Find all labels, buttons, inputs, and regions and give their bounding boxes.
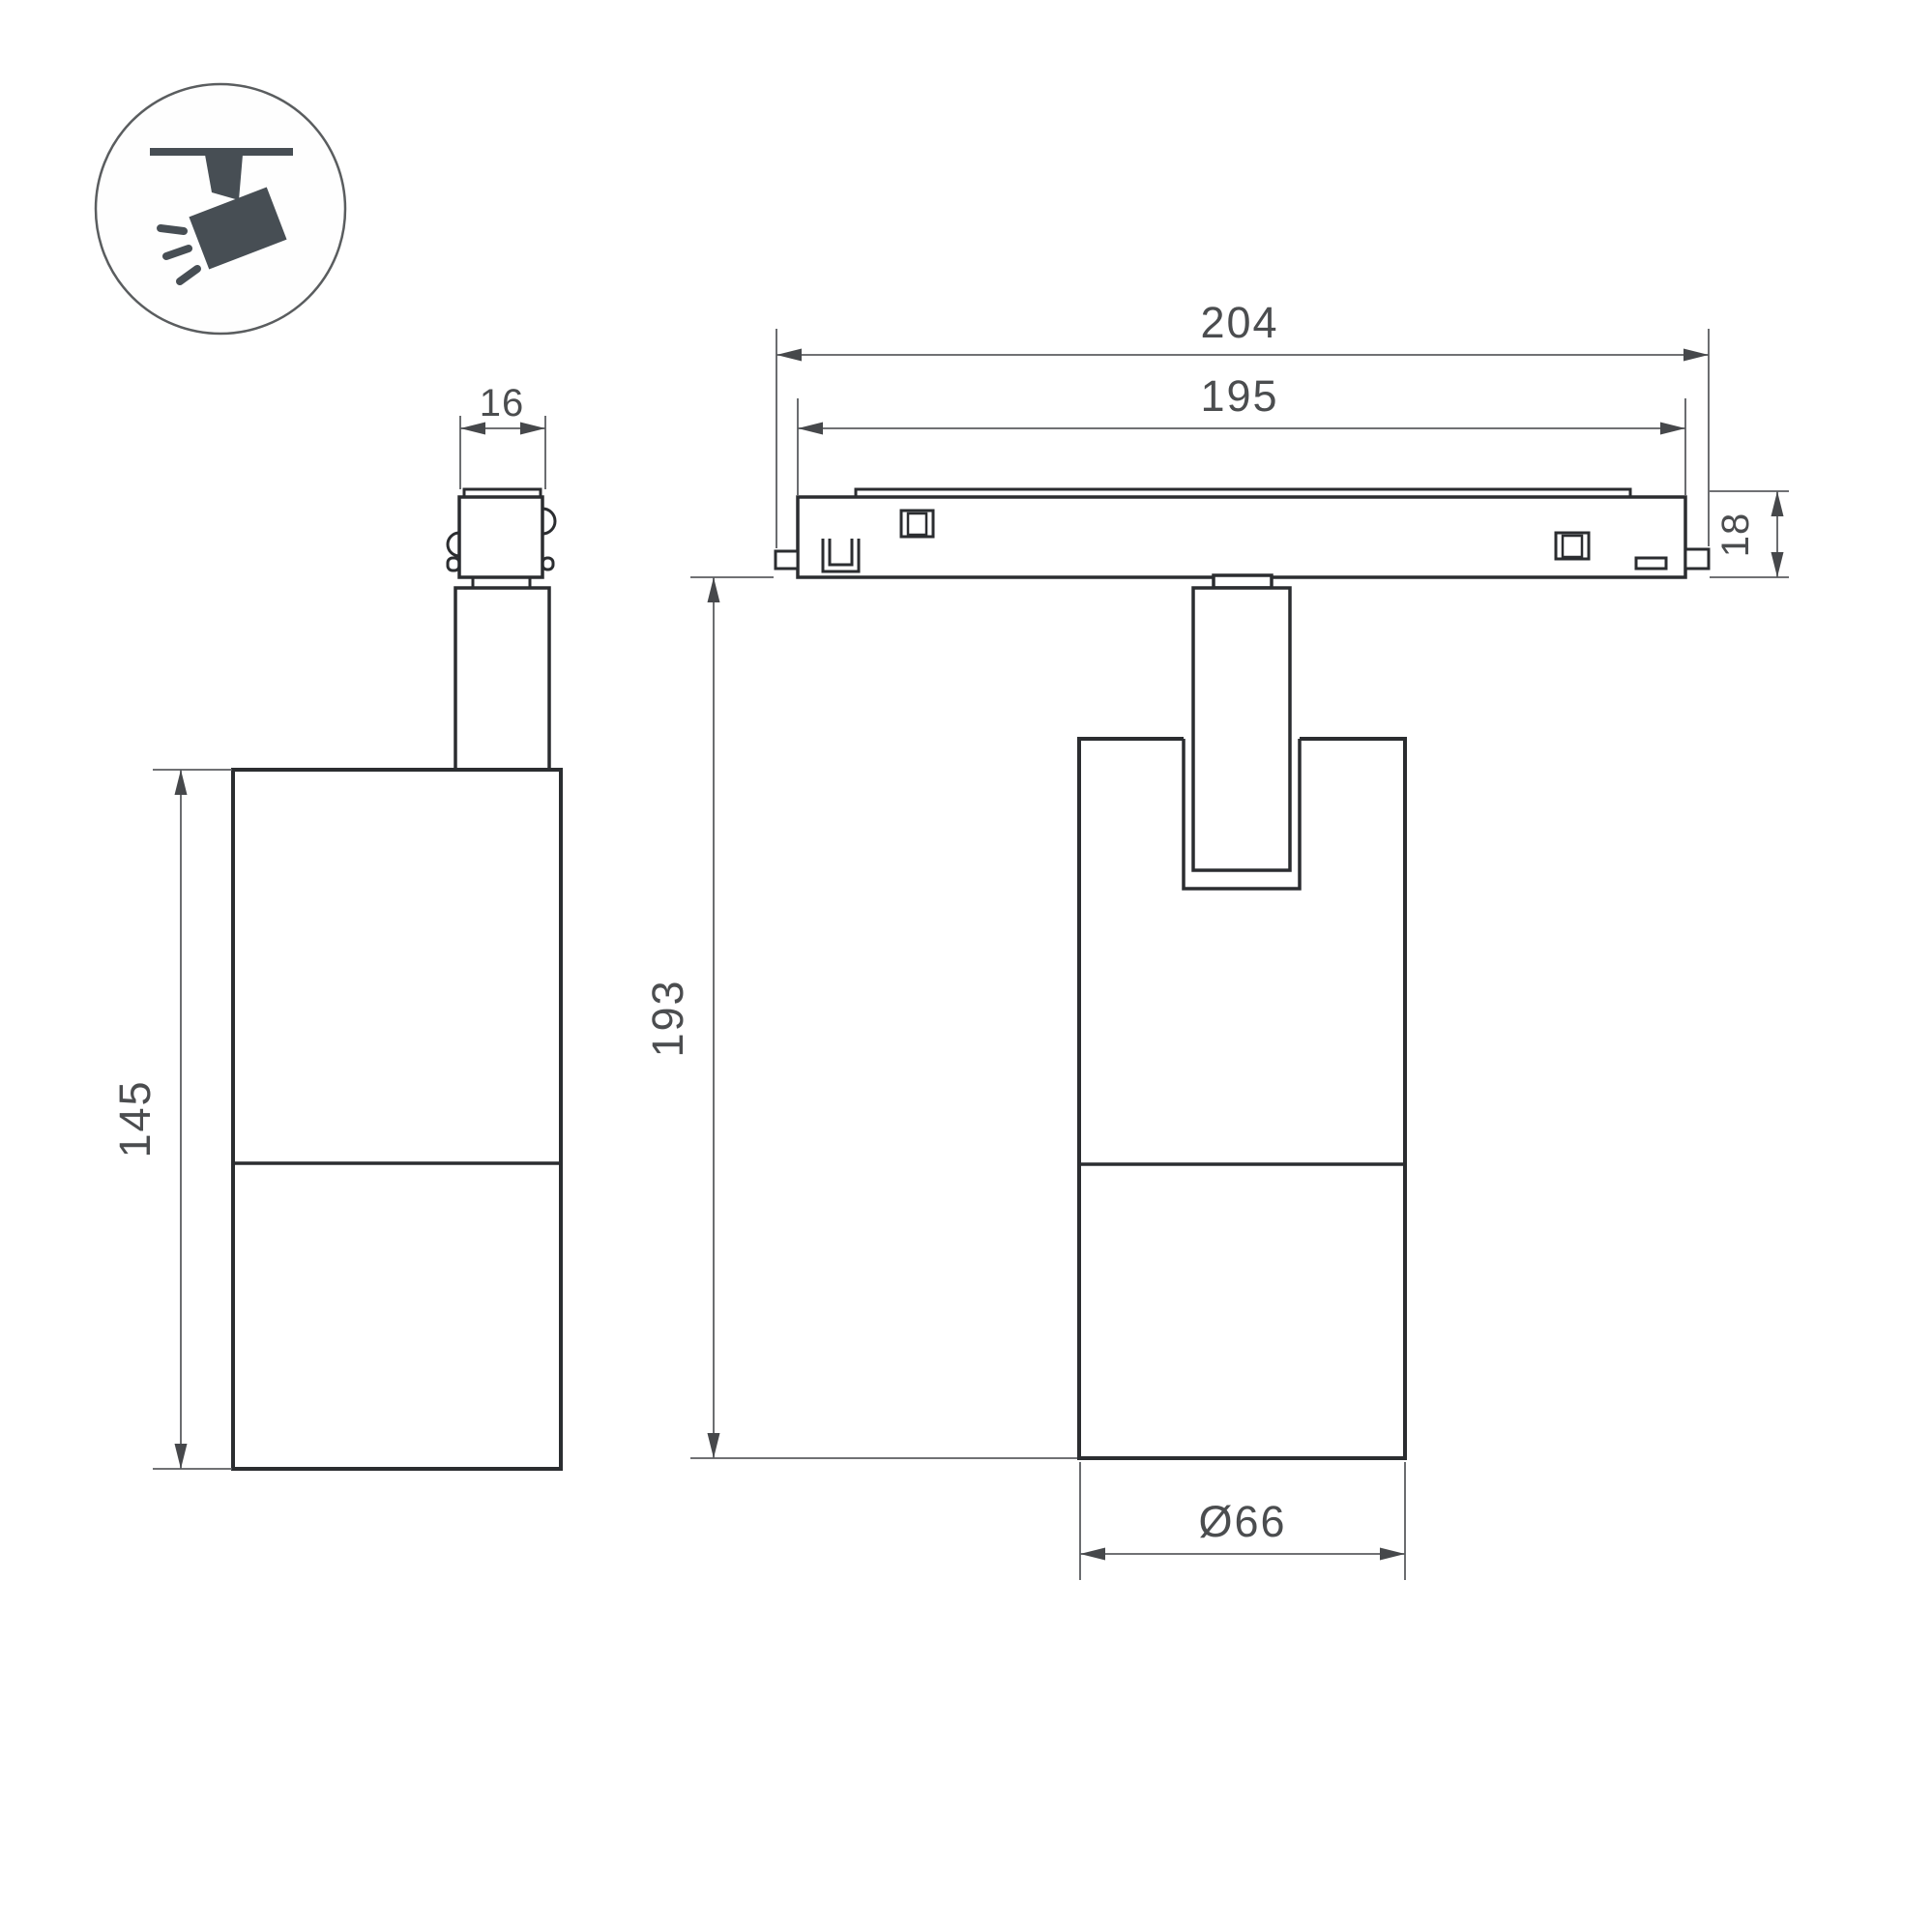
technical-drawing-canvas: 16 204 195 18 193 145 Ø66 bbox=[0, 0, 1932, 1932]
arrow-down bbox=[1771, 552, 1784, 577]
dim-label-204: 204 bbox=[1200, 298, 1278, 347]
front-stem bbox=[1193, 588, 1290, 870]
dim-label-diameter-66: Ø66 bbox=[1198, 1497, 1286, 1546]
arrow-left bbox=[1080, 1548, 1105, 1561]
arrow-up bbox=[1771, 491, 1784, 516]
dim-label-145: 145 bbox=[110, 1079, 160, 1157]
track-end-nub-left bbox=[776, 551, 798, 569]
dim-label-16: 16 bbox=[480, 382, 525, 424]
arrow-right bbox=[1380, 1548, 1405, 1561]
front-view bbox=[776, 489, 1709, 1458]
pivot-nub bbox=[1214, 575, 1272, 588]
side-latch-ear-left bbox=[448, 533, 459, 556]
side-view bbox=[233, 489, 561, 1469]
side-lamp-body bbox=[233, 770, 561, 1469]
spotlight-badge-icon bbox=[96, 84, 345, 334]
arrow-down bbox=[708, 1433, 720, 1458]
ceiling-line-icon bbox=[150, 148, 293, 156]
side-stem bbox=[455, 588, 549, 770]
dim-label-195: 195 bbox=[1200, 371, 1278, 421]
dim-label-193: 193 bbox=[643, 979, 692, 1057]
arrow-left bbox=[798, 423, 823, 435]
arrow-up bbox=[175, 770, 188, 795]
drawing-svg: 16 204 195 18 193 145 Ø66 bbox=[0, 0, 1932, 1932]
arrow-right bbox=[1683, 349, 1709, 362]
light-ray-icon bbox=[161, 228, 184, 231]
side-latch-ear-right bbox=[542, 509, 555, 534]
side-latch-nub-left bbox=[448, 558, 459, 571]
arrow-right bbox=[1660, 423, 1685, 435]
arrow-up bbox=[708, 577, 720, 602]
dimension-labels: 16 204 195 18 193 145 Ø66 bbox=[110, 298, 1757, 1546]
arrow-left bbox=[776, 349, 802, 362]
side-adapter-box bbox=[459, 497, 542, 577]
track-end-nub-right bbox=[1685, 549, 1709, 569]
dim-label-18: 18 bbox=[1714, 512, 1757, 558]
arrow-down bbox=[175, 1444, 188, 1469]
